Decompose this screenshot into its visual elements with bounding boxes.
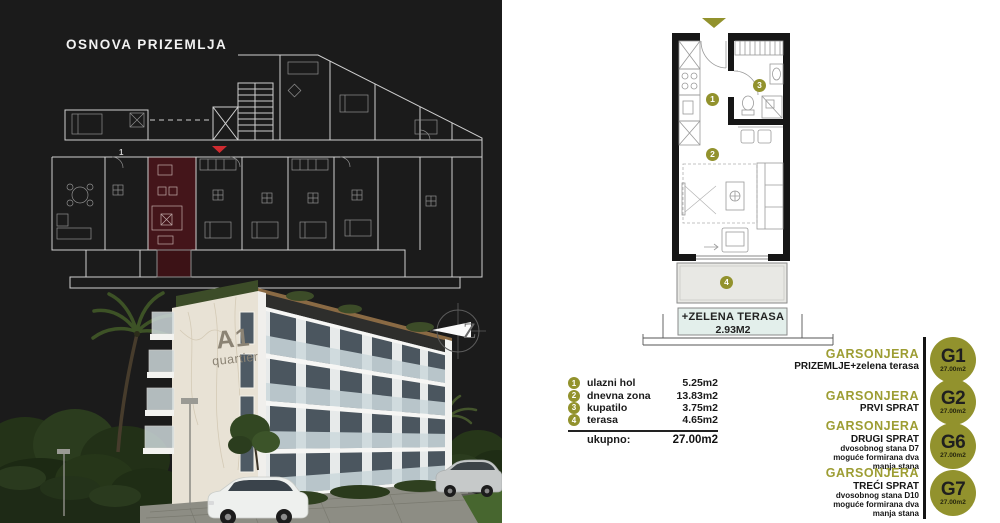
legend-dot-3: 3 xyxy=(568,402,580,414)
building-brand: A1 quartier xyxy=(200,324,268,369)
legend-area: 5.25m2 xyxy=(682,377,718,389)
unit-area: 27.00m2 xyxy=(940,409,966,416)
unit-badge-g2: G2 27.00m2 xyxy=(930,379,976,425)
unit-divider-bar xyxy=(923,421,926,471)
unit-name: GARSONJERA xyxy=(757,390,919,403)
legend-label: dnevna zona xyxy=(587,390,677,402)
room-marker-4: 4 xyxy=(720,276,733,289)
legend-row: 1 ulazni hol 5.25m2 xyxy=(568,377,718,389)
unit-card-g7: GARSONJERA TREĆI SPRAT dvosobnog stana D… xyxy=(757,467,976,519)
legend-label: ulazni hol xyxy=(587,377,682,389)
unit-area: 27.00m2 xyxy=(940,367,966,374)
unit-note: manja stana xyxy=(757,510,919,519)
green-terrace-area-value: 2.93M2 xyxy=(678,324,788,337)
unit-card-text: GARSONJERA PRIZEMLJE+zelena terasa xyxy=(757,348,919,372)
unit-card-text: GARSONJERA PRVI SPRAT xyxy=(757,390,919,414)
highlighted-unit-number: 1 xyxy=(119,148,123,157)
unit-divider-bar xyxy=(923,380,926,424)
legend-label: kupatilo xyxy=(587,402,682,414)
green-terrace-label: +ZELENA TERASA 2.93M2 xyxy=(678,311,788,337)
legend-total-row: ukupno: 27.00m2 xyxy=(568,434,718,447)
legend-dot-4: 4 xyxy=(568,414,580,426)
compass-letter: Z xyxy=(463,318,476,344)
legend-row: 2 dnevna zona 13.83m2 xyxy=(568,389,718,401)
unit-area: 27.00m2 xyxy=(940,453,966,460)
unit-card-text: GARSONJERA DRUGI SPRAT dvosobnog stana D… xyxy=(757,420,919,471)
legend-dot-1: 1 xyxy=(568,377,580,389)
unit-name: GARSONJERA xyxy=(757,467,919,480)
unit-code: G7 xyxy=(941,480,965,499)
unit-code: G1 xyxy=(941,347,965,366)
unit-name: GARSONJERA xyxy=(757,348,919,361)
page: OSNOVA PRIZEMLJA 1 A1 quartier Z xyxy=(0,0,1000,523)
unit-fixtures xyxy=(679,41,783,252)
unit-card-text: GARSONJERA TREĆI SPRAT dvosobnog stana D… xyxy=(757,467,919,518)
unit-floor: PRIZEMLJE+zelena terasa xyxy=(757,361,919,372)
unit-divider-bar xyxy=(923,337,926,383)
legend-total-area: 27.00m2 xyxy=(673,434,718,446)
unit-card-g6: GARSONJERA DRUGI SPRAT dvosobnog stana D… xyxy=(757,421,976,471)
unit-badge-g1: G1 27.00m2 xyxy=(930,337,976,383)
legend-dot-2: 2 xyxy=(568,390,580,402)
site-plan-and-render-svg xyxy=(0,0,502,523)
legend-row: 3 kupatilo 3.75m2 xyxy=(568,402,718,414)
left-panel: OSNOVA PRIZEMLJA 1 A1 quartier Z xyxy=(0,0,502,523)
unit-floor: PRVI SPRAT xyxy=(757,403,919,414)
room-marker-3: 3 xyxy=(753,79,766,92)
unit-badge-g7: G7 27.00m2 xyxy=(930,470,976,516)
legend-total-label: ukupno: xyxy=(587,434,673,446)
unit-area: 27.00m2 xyxy=(940,500,966,507)
legend-label: terasa xyxy=(587,414,682,426)
room-legend: 1 ulazni hol 5.25m2 2 dnevna zona 13.83m… xyxy=(568,377,718,447)
legend-row: 4 terasa 4.65m2 xyxy=(568,414,718,426)
legend-area: 4.65m2 xyxy=(682,414,718,426)
green-terrace-title: +ZELENA TERASA xyxy=(678,311,788,324)
legend-area: 3.75m2 xyxy=(682,402,718,414)
unit-code: G6 xyxy=(941,433,965,452)
room-marker-1: 1 xyxy=(706,93,719,106)
unit-card-g1: GARSONJERA PRIZEMLJE+zelena terasa G1 27… xyxy=(757,337,976,383)
unit-floor-plan-svg xyxy=(620,0,840,350)
unit-divider-bar xyxy=(923,467,926,519)
legend-area: 13.83m2 xyxy=(677,390,718,402)
entrance-arrow-icon xyxy=(702,18,726,28)
legend-divider xyxy=(568,430,718,432)
unit-name: GARSONJERA xyxy=(757,420,919,433)
room-marker-2: 2 xyxy=(706,148,719,161)
unit-walls xyxy=(672,33,790,261)
page-title: OSNOVA PRIZEMLJA xyxy=(66,37,227,52)
unit-code: G2 xyxy=(941,389,965,408)
unit-badge-g6: G6 27.00m2 xyxy=(930,423,976,469)
unit-card-g2: GARSONJERA PRVI SPRAT G2 27.00m2 xyxy=(757,380,976,424)
